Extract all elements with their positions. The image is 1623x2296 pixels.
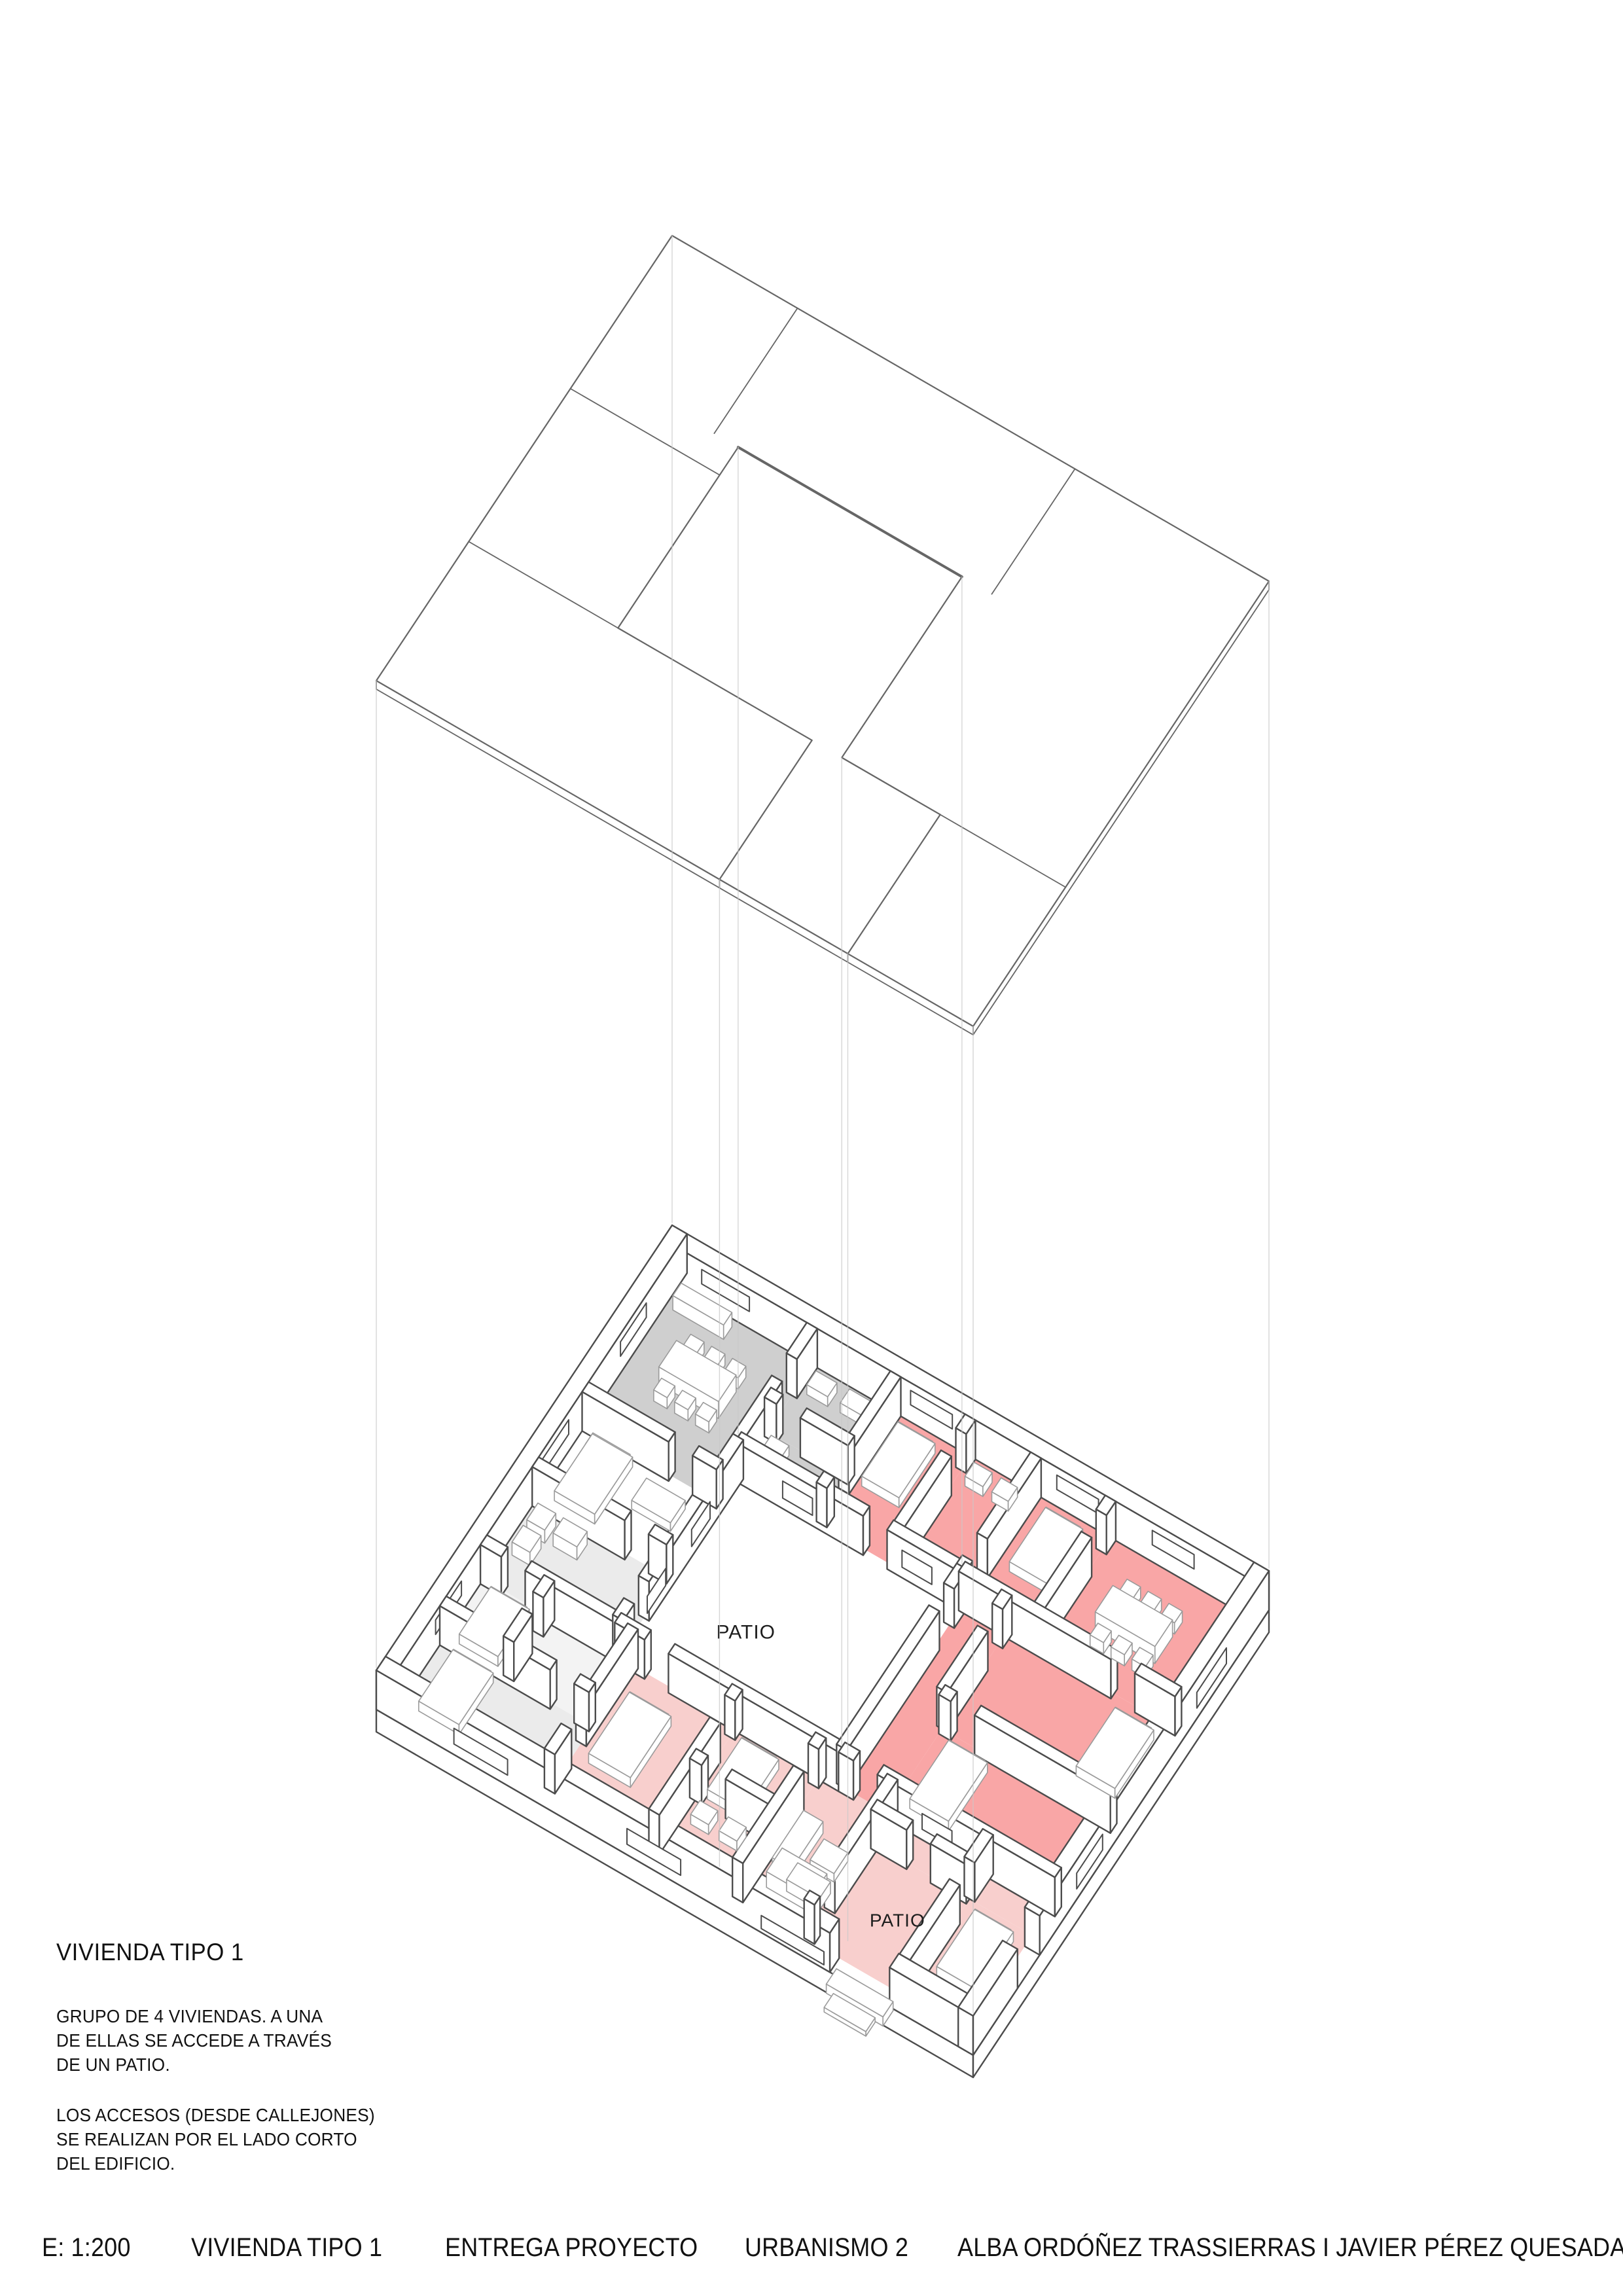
patio-label-entry: PATIO	[870, 1910, 925, 1931]
annotation-paragraph-1: GRUPO DE 4 VIVIENDAS. A UNA DE ELLAS SE …	[56, 2004, 375, 2077]
title-block-footer: E: 1:200 VIVIENDA TIPO 1 ENTREGA PROYECT…	[0, 2233, 1623, 2272]
footer-drawing-name: VIVIENDA TIPO 1	[191, 2233, 382, 2263]
footer-delivery: ENTREGA PROYECTO	[445, 2233, 698, 2263]
footer-course: URBANISMO 2	[745, 2233, 908, 2263]
sheet: PATIOPATIO VIVIENDA TIPO 1 GRUPO DE 4 VI…	[0, 0, 1623, 2296]
footer-authors: ALBA ORDÓÑEZ TRASSIERRAS I JAVIER PÉREZ …	[957, 2233, 1623, 2263]
drawing-title: VIVIENDA TIPO 1	[56, 1939, 375, 1966]
annotation-block: VIVIENDA TIPO 1 GRUPO DE 4 VIVIENDAS. A …	[56, 1939, 375, 2202]
footer-scale: E: 1:200	[42, 2233, 131, 2263]
roof-slab	[376, 236, 1269, 1035]
annotation-paragraph-2: LOS ACCESOS (DESDE CALLEJONES) SE REALIZ…	[56, 2103, 375, 2176]
floor-plan: PATIOPATIO	[376, 1225, 1269, 2077]
patio-label-main: PATIO	[716, 1621, 776, 1643]
